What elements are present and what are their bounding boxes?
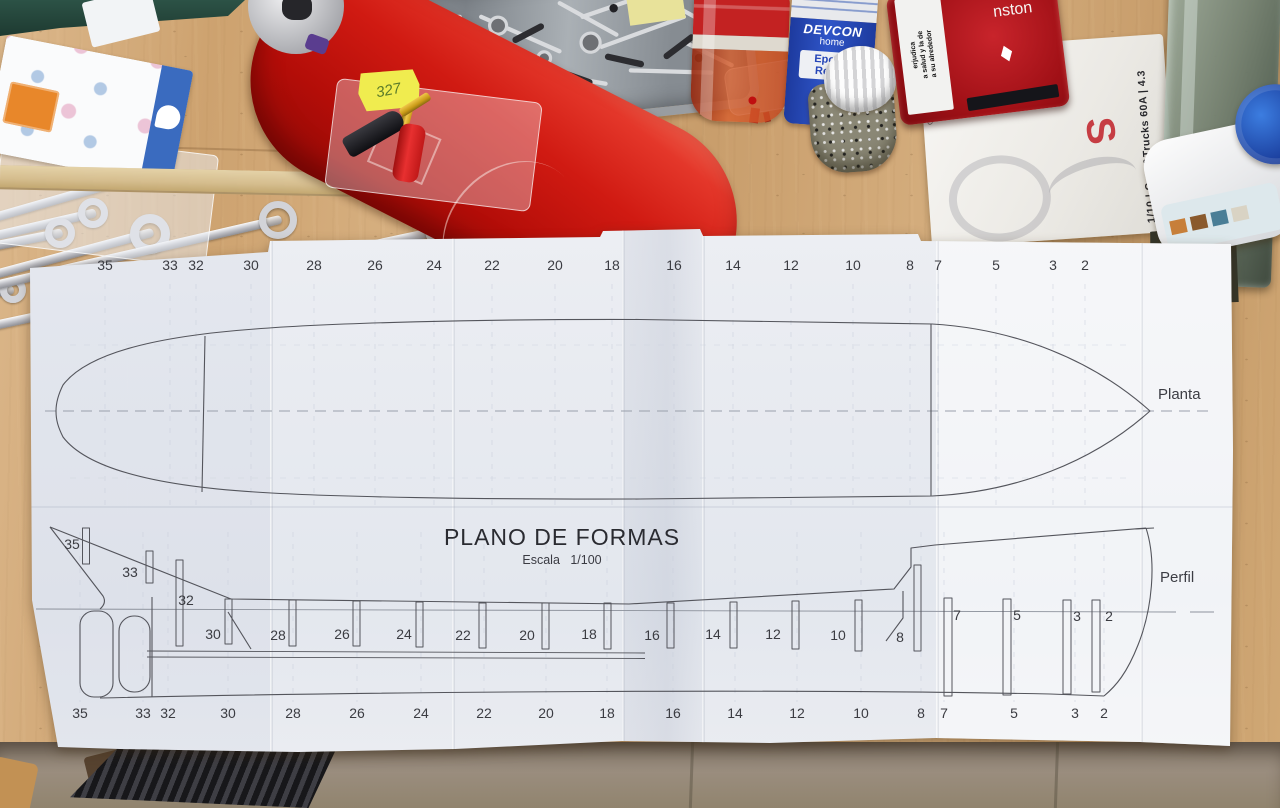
- station-label: 35: [64, 536, 80, 552]
- station-label: 28: [270, 627, 286, 643]
- station-label: 12: [765, 626, 781, 642]
- station-label: 32: [178, 592, 194, 608]
- station-label: 2: [1100, 705, 1108, 721]
- station-label: 20: [519, 627, 535, 643]
- station-label: 3: [1071, 705, 1079, 721]
- station-label: 14: [725, 257, 741, 273]
- station-label: 10: [830, 627, 846, 643]
- ribbed-pedal: [70, 748, 335, 808]
- label-picture: [1190, 214, 1209, 231]
- station-label: 10: [845, 257, 861, 273]
- station-label: 7: [940, 705, 948, 721]
- station-label: 22: [455, 627, 471, 643]
- station-label: 8: [906, 257, 914, 273]
- box-logo-letter: S: [1076, 114, 1124, 147]
- station-label: 8: [917, 705, 925, 721]
- tin-warning-label: erjudica a salud y la de a su alrededor: [894, 0, 954, 115]
- station-label: 22: [476, 705, 492, 721]
- station-label: 26: [334, 626, 350, 642]
- can-nozzle: [282, 0, 312, 20]
- station-label: 24: [396, 626, 412, 642]
- station-label: 5: [992, 257, 1000, 273]
- workbench-photo: 327 DEVCON home Epoxy Resin: [0, 0, 1280, 808]
- station-label: 14: [727, 705, 743, 721]
- red-liquid-bottle: [690, 0, 790, 124]
- box-graphic-circle: [946, 152, 1054, 245]
- station-label: 16: [644, 627, 660, 643]
- station-label: 33: [135, 705, 151, 721]
- station-label: 30: [243, 257, 259, 273]
- wrench-ring: [259, 201, 297, 239]
- station-label: 35: [97, 257, 113, 273]
- grout-line: [1054, 742, 1059, 808]
- station-label: 28: [285, 705, 301, 721]
- station-label: 3: [1073, 608, 1081, 624]
- station-label: 18: [599, 705, 615, 721]
- label-picture: [1169, 218, 1188, 235]
- station-label: 7: [953, 607, 961, 623]
- station-label: 18: [604, 257, 620, 273]
- station-label: 16: [665, 705, 681, 721]
- station-label: 33: [122, 564, 138, 580]
- label-picture: [1231, 205, 1250, 222]
- station-label: 3: [1049, 257, 1057, 273]
- station-label: 12: [789, 705, 805, 721]
- glue-label: [1160, 182, 1280, 253]
- sticky-note-text: 327: [375, 79, 403, 100]
- station-label: 30: [220, 705, 236, 721]
- station-label: 7: [934, 257, 942, 273]
- tin-warning-text: erjudica a salud y la de a su alrededor: [908, 29, 940, 80]
- grout-line: [689, 742, 694, 808]
- station-label: 14: [705, 626, 721, 642]
- box-graphic-swash: [1043, 147, 1143, 218]
- station-label: 18: [581, 626, 597, 642]
- tobacco-tin: erjudica a salud y la de a su alrededor …: [886, 0, 1071, 126]
- station-label: 2: [1105, 608, 1113, 624]
- tin-bird-logo: [1001, 46, 1012, 62]
- station-label: 24: [426, 257, 442, 273]
- station-label: 2: [1081, 257, 1089, 273]
- station-label: 24: [413, 705, 429, 721]
- station-label: 5: [1010, 705, 1018, 721]
- station-label: 20: [547, 257, 563, 273]
- station-label: 16: [666, 257, 682, 273]
- station-label: 8: [896, 629, 904, 645]
- station-label: 20: [538, 705, 554, 721]
- station-label: 5: [1013, 607, 1021, 623]
- tin-black-strip: [966, 84, 1059, 111]
- station-label: 10: [853, 705, 869, 721]
- station-label: 26: [367, 257, 383, 273]
- station-label: 26: [349, 705, 365, 721]
- station-label: 32: [160, 705, 176, 721]
- station-label: 35: [72, 705, 88, 721]
- label-picture: [1210, 209, 1229, 226]
- station-label: 22: [484, 257, 500, 273]
- station-label: 32: [188, 257, 204, 273]
- station-label: 28: [306, 257, 322, 273]
- tin-brand-script: nston: [992, 0, 1033, 22]
- station-label: 33: [162, 257, 178, 273]
- station-label: 12: [783, 257, 799, 273]
- station-label: 30: [205, 626, 221, 642]
